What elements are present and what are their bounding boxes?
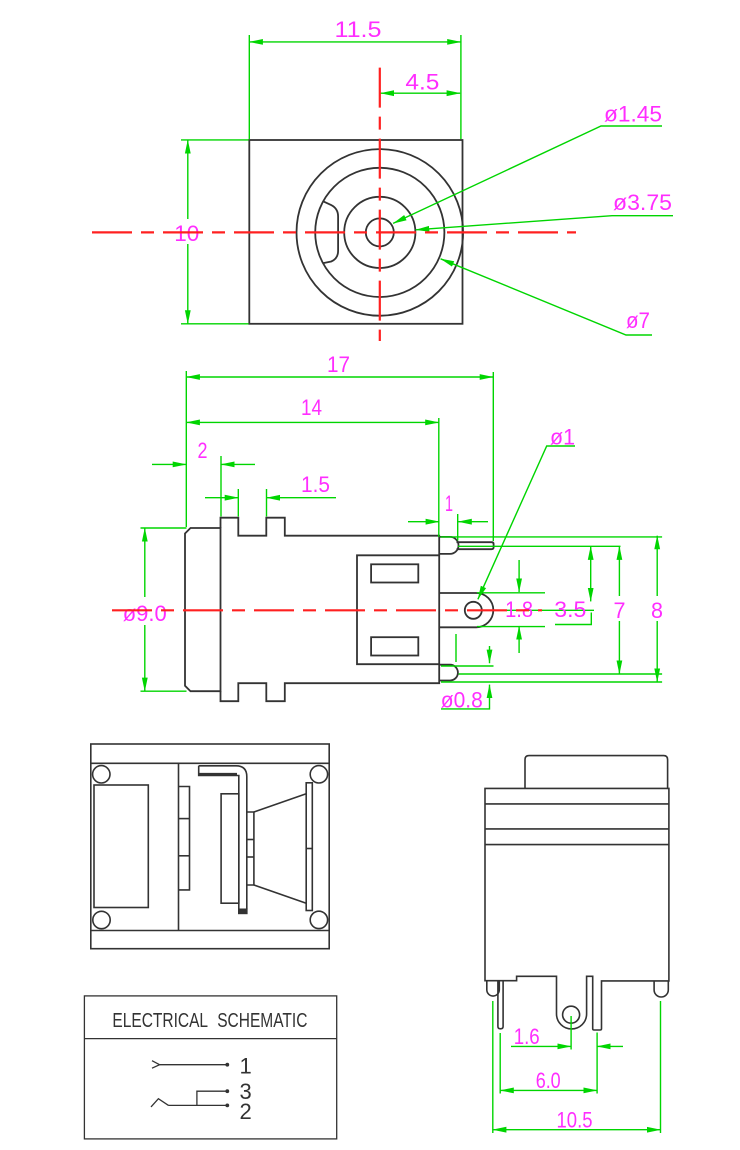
svg-text:2: 2 [240, 1099, 252, 1124]
svg-text:1.6: 1.6 [514, 1024, 540, 1049]
svg-text:10: 10 [174, 221, 199, 246]
svg-text:8: 8 [651, 598, 663, 623]
svg-text:17: 17 [327, 352, 350, 377]
svg-text:ø1: ø1 [550, 425, 575, 450]
svg-text:3.5: 3.5 [554, 597, 586, 622]
svg-text:6.0: 6.0 [536, 1068, 561, 1093]
svg-text:11.5: 11.5 [335, 17, 382, 42]
svg-text:7: 7 [614, 598, 626, 623]
svg-text:ø7: ø7 [626, 308, 650, 333]
svg-text:ø3.75: ø3.75 [613, 190, 672, 215]
svg-text:ø1.45: ø1.45 [604, 102, 662, 127]
svg-text:4.5: 4.5 [405, 70, 439, 95]
svg-text:ø0.8: ø0.8 [441, 688, 483, 713]
svg-text:ø9.0: ø9.0 [123, 601, 167, 626]
svg-text:10.5: 10.5 [557, 1108, 593, 1133]
svg-text:2: 2 [198, 438, 208, 463]
svg-text:14: 14 [301, 395, 322, 420]
svg-text:1: 1 [240, 1054, 252, 1079]
svg-text:ELECTRICAL SCHEMATIC: ELECTRICAL SCHEMATIC [112, 1010, 307, 1032]
svg-text:1.5: 1.5 [301, 472, 330, 497]
svg-text:1: 1 [445, 491, 453, 516]
